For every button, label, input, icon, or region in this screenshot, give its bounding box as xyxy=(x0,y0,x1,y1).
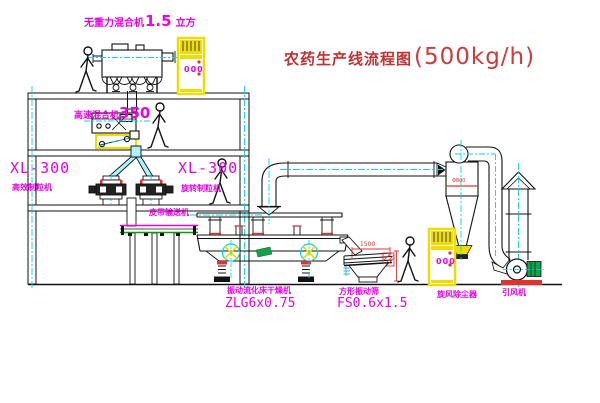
cabinet-2-display: 000 xyxy=(436,258,456,266)
page-title: 农药生产线流程图(500kg/h) xyxy=(284,46,535,69)
granulator-left-name: 高效制粒机 xyxy=(12,184,52,192)
high-speed-mixer-model: 350 xyxy=(119,106,150,121)
screen-label: 方形振动筛 xyxy=(339,288,379,296)
screen-model: FS0.6x1.5 xyxy=(337,297,407,310)
granulator-right-model: XL-300 xyxy=(178,161,238,176)
granulator-left-model: XL-300 xyxy=(10,161,70,176)
discharge-chute xyxy=(340,237,362,255)
gravity-mixer-machine xyxy=(88,44,182,93)
cyclone-label: 旋风除尘器 xyxy=(437,291,477,299)
fan-label: 引风机 xyxy=(502,289,526,297)
worker-figure-4 xyxy=(398,237,418,282)
high-speed-mixer-label: 高速混合机350 xyxy=(74,106,150,121)
high-speed-mixer-name: 高速混合机 xyxy=(74,112,119,121)
dryer-model: ZLG6x0.75 xyxy=(225,297,295,310)
worker-figure-1 xyxy=(76,47,96,92)
cad-flow-diagram: 无重力混合机1.5立方 农药生产线流程图(500kg/h) 高速混合机350 X… xyxy=(0,0,600,403)
title-capacity: (500kg/h) xyxy=(414,46,535,69)
vibrating-screen-machine xyxy=(344,247,400,282)
cyclone-diameter-dimension: Φ800 xyxy=(452,179,465,184)
belt-conveyor-label: 皮带输送机 xyxy=(149,209,189,217)
granulator-right-name: 旋转制粒机 xyxy=(181,185,221,193)
screen-length-dimension: 1500 xyxy=(360,242,375,248)
gravity-mixer-unit: 立方 xyxy=(176,19,196,29)
dryer-label: 振动流化床干燥机 xyxy=(227,287,291,295)
worker-figure-2 xyxy=(148,103,168,148)
title-text: 农药生产线流程图 xyxy=(284,52,412,67)
exhaust-duct xyxy=(257,158,456,224)
belt-conveyor xyxy=(120,226,198,237)
gravity-mixer-size: 1.5 xyxy=(145,14,172,29)
gravity-mixer-label: 无重力混合机1.5立方 xyxy=(84,14,196,29)
cabinet-1-display: 000 xyxy=(184,66,204,74)
gravity-mixer-name: 无重力混合机 xyxy=(84,19,144,29)
